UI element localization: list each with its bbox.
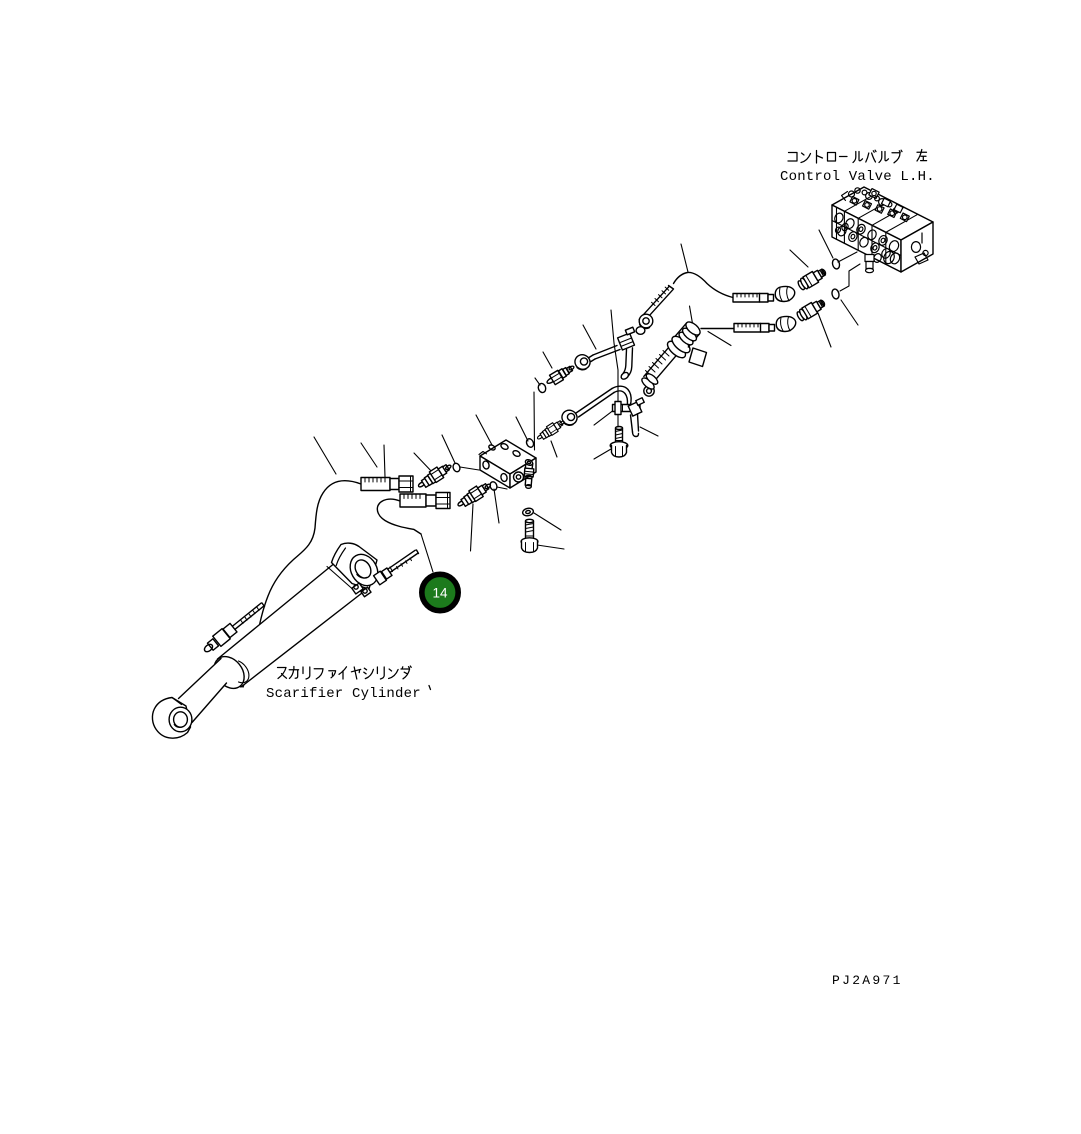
svg-text:14: 14: [432, 586, 448, 601]
svg-text:Control Valve L.H.: Control Valve L.H.: [780, 169, 935, 185]
svg-text:PJ2A971: PJ2A971: [832, 973, 903, 988]
svg-text:Scarifier Cylinder: Scarifier Cylinder: [266, 686, 421, 702]
